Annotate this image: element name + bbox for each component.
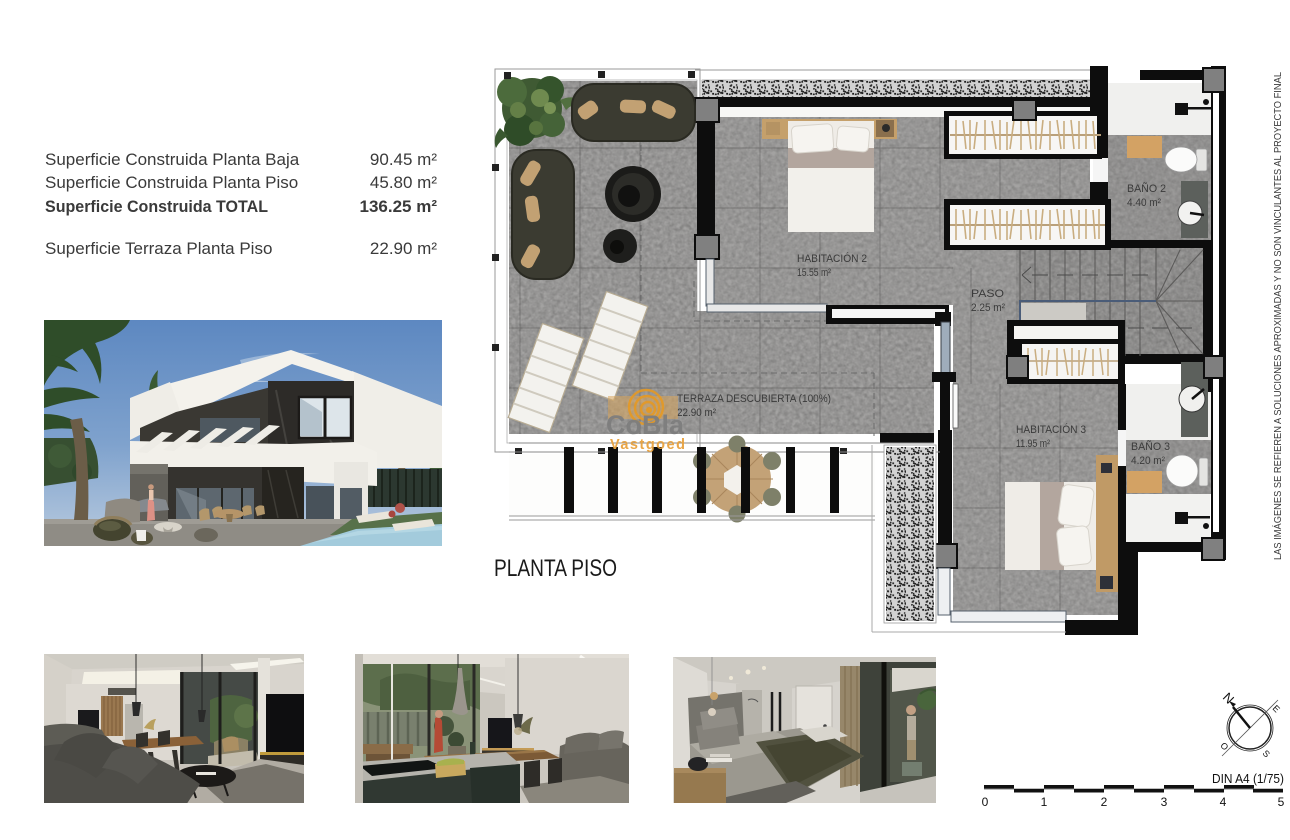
svg-text:HABITACIÓN 3: HABITACIÓN 3	[1016, 423, 1086, 436]
svg-text:22.90 m²: 22.90 m²	[370, 239, 437, 258]
svg-text:Vastgoed: Vastgoed	[610, 437, 686, 453]
svg-text:HABITACIÓN 2: HABITACIÓN 2	[797, 252, 867, 265]
svg-text:136.25 m²: 136.25 m²	[360, 197, 438, 216]
svg-text:1: 1	[1041, 795, 1048, 809]
svg-text:15.55 m²: 15.55 m²	[797, 267, 831, 279]
svg-text:0: 0	[982, 795, 989, 809]
svg-text:BAÑO 3: BAÑO 3	[1131, 440, 1170, 453]
svg-text:CoBla: CoBla	[606, 410, 685, 440]
svg-text:Superficie Construida TOTAL: Superficie Construida TOTAL	[45, 197, 268, 216]
svg-text:3: 3	[1161, 795, 1168, 809]
svg-text:Superficie Construida Planta P: Superficie Construida Planta Piso	[45, 173, 298, 192]
svg-text:S: S	[1261, 748, 1272, 759]
svg-text:DIN A4 (1/75): DIN A4 (1/75)	[1212, 772, 1284, 786]
svg-text:11.95 m²: 11.95 m²	[1016, 438, 1050, 450]
svg-text:Superficie Terraza Planta Piso: Superficie Terraza Planta Piso	[45, 239, 272, 258]
svg-text:BAÑO 2: BAÑO 2	[1127, 182, 1166, 195]
svg-text:O: O	[1218, 740, 1230, 752]
svg-text:LAS IMÁGENES SE REFIEREN A SOL: LAS IMÁGENES SE REFIEREN A SOLUCIONES AP…	[1271, 72, 1284, 560]
svg-text:2.25 m²: 2.25 m²	[971, 302, 1005, 314]
svg-text:4: 4	[1220, 795, 1227, 809]
svg-text:4.20 m²: 4.20 m²	[1131, 455, 1165, 467]
svg-text:E: E	[1271, 703, 1282, 714]
svg-text:Superficie Construida Planta B: Superficie Construida Planta Baja	[45, 150, 300, 169]
svg-text:2: 2	[1101, 795, 1108, 809]
svg-text:90.45 m²: 90.45 m²	[370, 150, 437, 169]
svg-text:5: 5	[1278, 795, 1285, 809]
svg-text:PLANTA PISO: PLANTA PISO	[494, 555, 617, 582]
svg-text:4.40 m²: 4.40 m²	[1127, 197, 1161, 209]
svg-text:PASO: PASO	[971, 288, 1004, 300]
svg-text:45.80 m²: 45.80 m²	[370, 173, 437, 192]
svg-text:TERRAZA DESCUBIERTA (100%): TERRAZA DESCUBIERTA (100%)	[677, 393, 831, 405]
